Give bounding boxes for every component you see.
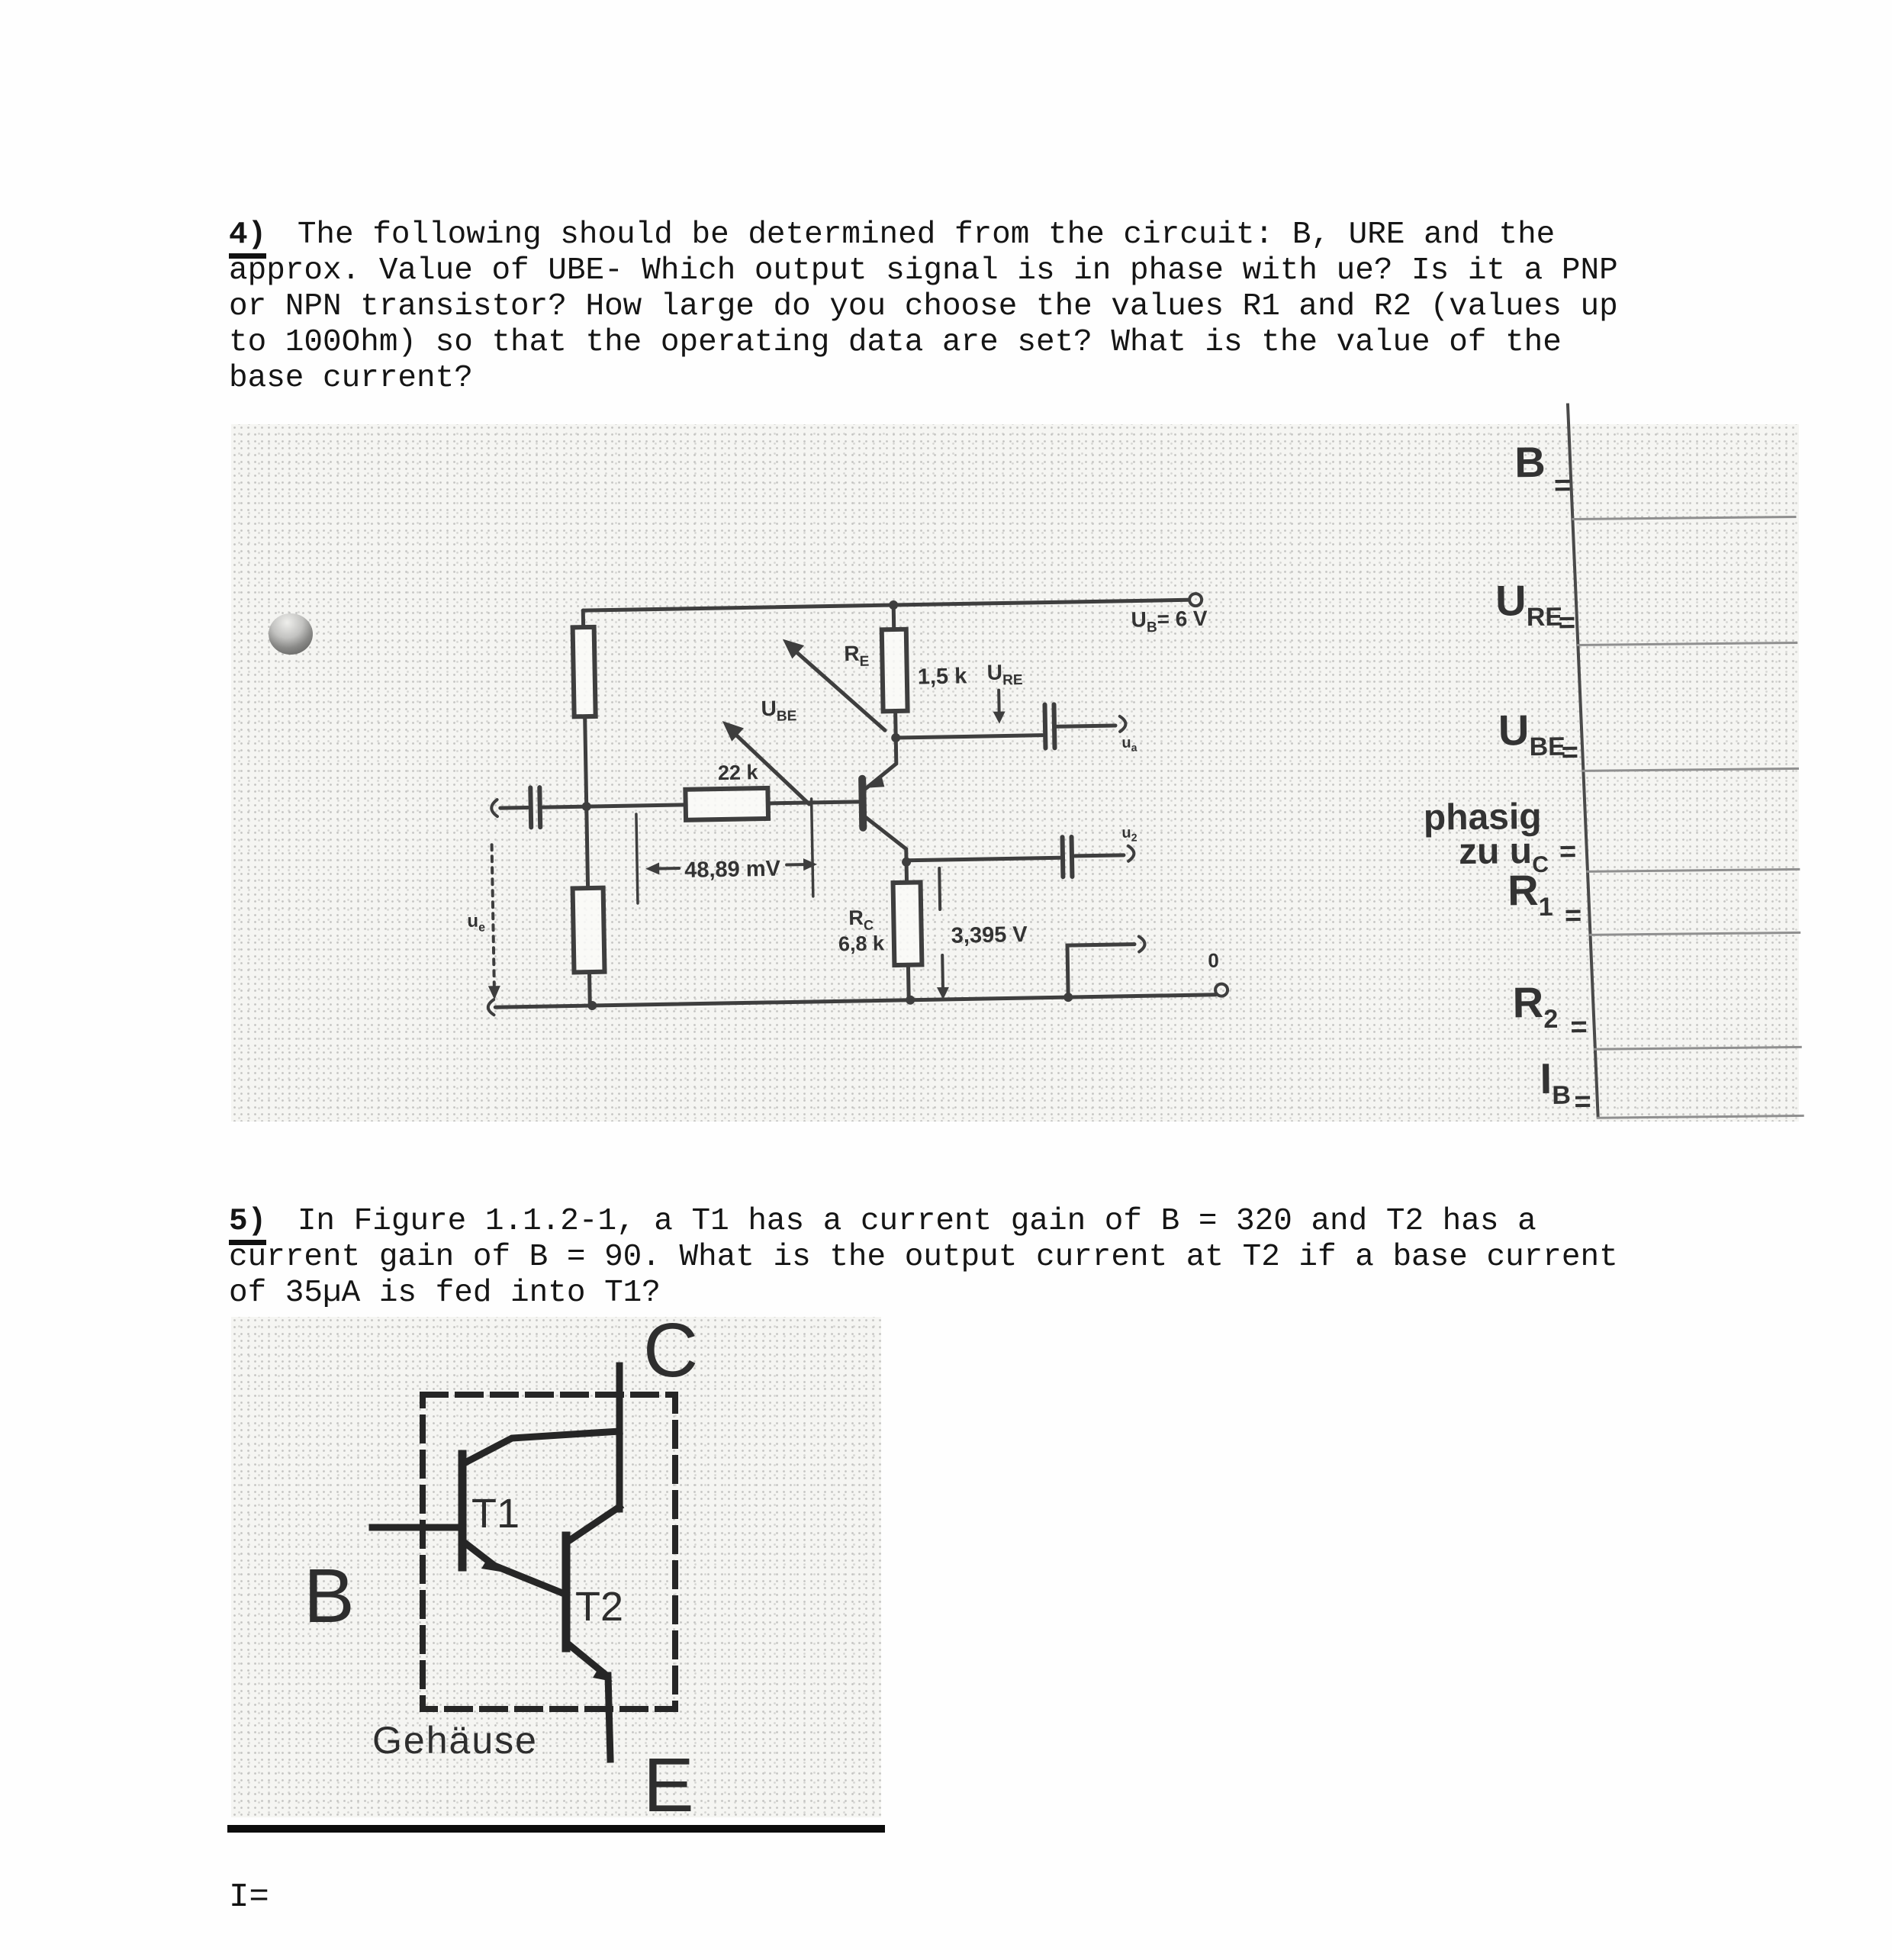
transistor-t2 — [566, 1507, 619, 1759]
scanned-circuit-image: UB= 6 V RE 1,5 k URE UBE 22 k 48,89 mV R… — [231, 424, 1799, 1122]
rb-value: 22 k — [718, 761, 759, 784]
mv-value: 48,89 mV — [684, 857, 781, 883]
output-terminal-2 — [1128, 846, 1134, 861]
darlington-pair-schematic: C B E T1 T2 Gehäuse — [231, 1317, 881, 1817]
pnp-transistor — [861, 738, 906, 863]
answer-table: B = U RE = U BE = phasig zu u C = R 1 = … — [1404, 394, 1820, 1154]
ue-voltage-arrow — [486, 845, 501, 999]
question-4-line: or NPN transistor? How large do you choo… — [229, 289, 1717, 325]
answer-label-b: B — [1514, 438, 1546, 486]
ure-arrow — [993, 690, 1006, 724]
t2-label: T2 — [575, 1584, 623, 1630]
ure-label: URE — [986, 660, 1022, 689]
re-label: RE — [844, 642, 870, 671]
scanned-darlington-figure: C B E T1 T2 Gehäuse — [231, 1317, 881, 1817]
out2-label: u2 — [1121, 825, 1137, 844]
question-4-line: approx. Value of UBE- Which output signa… — [229, 253, 1717, 289]
output-port-wire — [1067, 936, 1146, 997]
question-5-line: of 35µA is fed into T1? — [229, 1276, 1717, 1311]
answer-line-r2 — [1594, 1047, 1802, 1049]
question-4-line: 4) The following should be determined fr… — [229, 217, 1717, 253]
rc-value: 6,8 k — [838, 932, 886, 955]
output-capacitor-1 — [1044, 704, 1054, 748]
answer-line-b — [1572, 517, 1796, 519]
resistor-r2 — [571, 806, 606, 1006]
rc-label: RC — [848, 906, 874, 934]
question-5-number: 5) — [229, 1204, 266, 1245]
equals: = — [1574, 1086, 1591, 1118]
collector-output-branch — [902, 836, 1134, 880]
output-terminal-1 — [1120, 716, 1126, 732]
emitter-lead — [608, 1675, 610, 1759]
question-5-text: 5) In Figure 1.1.2-1, a T1 has a current… — [229, 1204, 1717, 1311]
answer-label-ure: U — [1495, 576, 1527, 624]
input-terminal-low — [488, 999, 494, 1015]
base-label: B — [304, 1553, 355, 1639]
equals: = — [1554, 470, 1572, 502]
answer-line-ube — [1582, 768, 1799, 771]
answer-line-phase — [1586, 869, 1800, 871]
vc-measure-arrow — [935, 868, 949, 999]
ue-label: ue — [467, 910, 485, 934]
output-terminal-3 — [1139, 936, 1145, 951]
input-terminal — [491, 800, 497, 816]
sub: RE — [1527, 603, 1563, 632]
out1-label: ua — [1121, 734, 1137, 753]
case-label: Gehäuse — [372, 1719, 538, 1762]
collector-label: C — [643, 1317, 698, 1393]
answer-line-ure — [1577, 642, 1797, 645]
t1-label: T1 — [471, 1491, 520, 1537]
question-5-line: current gain of B = 90. What is the outp… — [229, 1240, 1717, 1276]
sub: BE — [1529, 732, 1565, 761]
ube-label: UBE — [761, 696, 796, 725]
input-capacitor — [530, 787, 540, 827]
question-5-line: 5) In Figure 1.1.2-1, a T1 has a current… — [229, 1204, 1717, 1240]
equals: = — [1570, 1011, 1588, 1043]
question-4-line: to 100Ohm) so that the operating data ar… — [229, 325, 1717, 361]
figure-divider-rule — [227, 1825, 885, 1833]
resistor-re — [881, 605, 908, 739]
sub: 2 — [1543, 1005, 1558, 1034]
sub: B — [1552, 1081, 1571, 1110]
vc-value: 3,395 V — [951, 922, 1028, 948]
equals: = — [1559, 835, 1577, 867]
question-4-line: base current? — [229, 361, 1717, 397]
ground-rail — [488, 983, 1228, 1015]
answer-line-r1 — [1589, 932, 1800, 935]
answer-line-ib — [1597, 1115, 1804, 1118]
emitter-label: E — [643, 1743, 694, 1817]
zero-label: 0 — [1208, 949, 1219, 972]
voltage-arrow-upper — [783, 637, 885, 732]
equals: = — [1561, 736, 1578, 768]
answer-label-ube: U — [1498, 706, 1530, 754]
zero-terminal — [1215, 983, 1228, 996]
supply-terminal — [1189, 594, 1202, 606]
resistor-22k — [685, 787, 861, 820]
sub: 1 — [1539, 893, 1553, 922]
answer-label-r1: R — [1507, 866, 1539, 914]
answer-label-r2: R — [1512, 978, 1543, 1026]
re-value: 1,5 k — [918, 664, 968, 689]
equals: = — [1565, 900, 1582, 932]
question-4-text: 4) The following should be determined fr… — [229, 217, 1717, 397]
equals: = — [1559, 607, 1576, 639]
emitter-output-branch — [891, 703, 1126, 751]
output-capacitor-2 — [1063, 837, 1073, 877]
result-prompt: I= — [229, 1878, 269, 1917]
question-4-number: 4) — [229, 217, 266, 259]
answer-label-ib: I — [1540, 1054, 1552, 1102]
resistor-r1 — [572, 610, 597, 806]
worksheet-page: { "q4": { "number": "4)", "lines": [ " T… — [0, 0, 1892, 1960]
resistor-rc — [893, 861, 922, 1000]
transistor-amplifier-schematic: UB= 6 V RE 1,5 k URE UBE 22 k 48,89 mV R… — [225, 415, 1305, 1131]
supply-label: UB= 6 V — [1131, 607, 1208, 636]
